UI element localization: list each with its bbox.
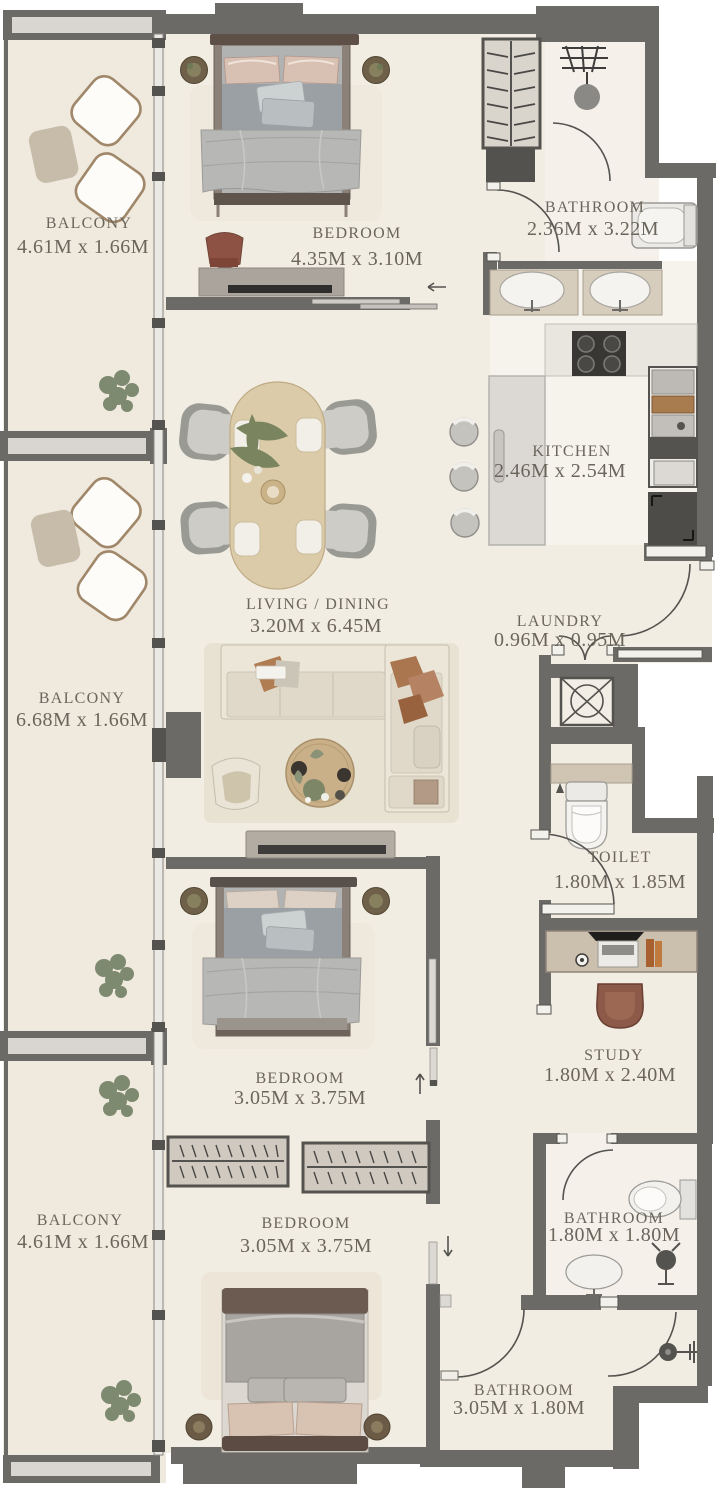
svg-text:TOILET: TOILET [588,849,652,866]
svg-text:BEDROOM: BEDROOM [255,1070,344,1087]
svg-text:4.61M x 1.66M: 4.61M x 1.66M [17,1231,149,1253]
svg-text:4.61M x 1.66M: 4.61M x 1.66M [17,236,149,258]
svg-text:3.05M x 3.75M: 3.05M x 3.75M [240,1235,372,1257]
svg-text:1.80M x 1.85M: 1.80M x 1.85M [554,871,686,893]
svg-text:BEDROOM: BEDROOM [261,1215,350,1232]
svg-text:6.68M x 1.66M: 6.68M x 1.66M [16,709,148,731]
svg-text:3.05M x 1.80M: 3.05M x 1.80M [453,1397,585,1419]
svg-text:KITCHEN: KITCHEN [532,443,611,460]
svg-text:4.35M x 3.10M: 4.35M x 3.10M [291,248,423,270]
svg-text:LIVING / DINING: LIVING / DINING [246,596,390,613]
svg-text:LAUNDRY: LAUNDRY [517,613,603,630]
svg-text:0.96M x 0.95M: 0.96M x 0.95M [494,629,626,651]
svg-text:BATHROOM: BATHROOM [545,199,645,216]
svg-text:3.05M x 3.75M: 3.05M x 3.75M [234,1087,366,1109]
svg-text:STUDY: STUDY [584,1047,644,1064]
svg-text:BEDROOM: BEDROOM [312,225,401,242]
svg-text:2.46M x 2.54M: 2.46M x 2.54M [494,460,626,482]
svg-text:2.36M x 3.22M: 2.36M x 3.22M [527,218,659,240]
svg-text:1.80M x 2.40M: 1.80M x 2.40M [544,1064,676,1086]
svg-text:1.80M x 1.80M: 1.80M x 1.80M [548,1224,680,1246]
svg-text:3.20M x 6.45M: 3.20M x 6.45M [250,615,382,637]
svg-text:BALCONY: BALCONY [39,690,125,707]
svg-text:BALCONY: BALCONY [37,1212,123,1229]
svg-text:BALCONY: BALCONY [46,215,132,232]
